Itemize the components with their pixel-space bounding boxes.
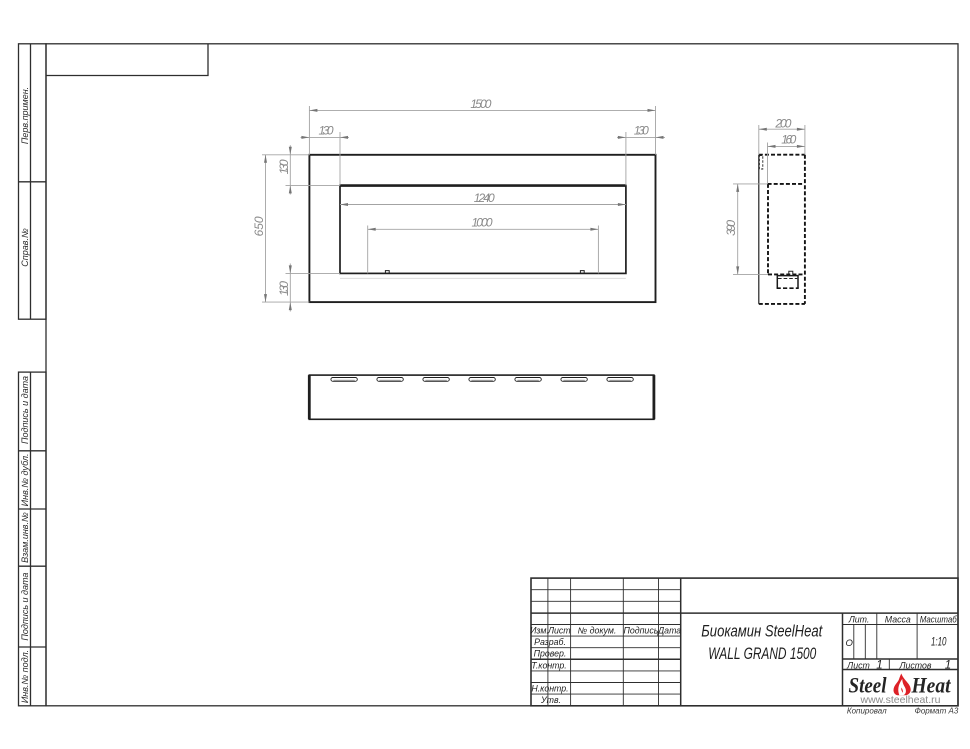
- svg-text:130: 130: [277, 159, 291, 174]
- svg-text:Взам.инв.№: Взам.инв.№: [20, 512, 30, 563]
- svg-text:1500: 1500: [470, 97, 491, 111]
- svg-text:200: 200: [774, 116, 791, 130]
- svg-text:Подпись и дата: Подпись и дата: [20, 376, 30, 444]
- svg-text:Биокамин SteelHeat: Биокамин SteelHeat: [701, 622, 823, 640]
- svg-text:Подпись и дата: Подпись и дата: [20, 573, 30, 641]
- svg-text:390: 390: [724, 220, 738, 236]
- svg-text:Лист: Лист: [547, 626, 571, 636]
- svg-text:Копировал: Копировал: [847, 707, 887, 716]
- svg-text:WALL GRAND 1500: WALL GRAND 1500: [708, 645, 817, 663]
- svg-text:Масса: Масса: [885, 614, 911, 624]
- svg-text:1:10: 1:10: [931, 635, 947, 649]
- svg-text:Подпись: Подпись: [623, 626, 658, 636]
- svg-text:160: 160: [781, 133, 796, 147]
- svg-text:1: 1: [945, 660, 951, 672]
- svg-text:Изм.: Изм.: [530, 626, 549, 636]
- svg-text:Дата: Дата: [657, 626, 681, 636]
- svg-text:1000: 1000: [472, 216, 493, 230]
- svg-text:1: 1: [876, 660, 882, 672]
- svg-text:Инв.№ дубл.: Инв.№ дубл.: [20, 453, 30, 506]
- svg-text:1240: 1240: [474, 191, 495, 205]
- svg-text:Формат А3: Формат А3: [915, 707, 959, 716]
- svg-text:Лист: Лист: [846, 660, 870, 670]
- svg-text:Т.контр.: Т.контр.: [531, 660, 567, 670]
- svg-text:Н.контр.: Н.контр.: [531, 684, 568, 694]
- svg-text:Утв.: Утв.: [540, 695, 561, 705]
- svg-text:Масштаб: Масштаб: [920, 614, 958, 624]
- svg-text:Справ.№: Справ.№: [20, 228, 30, 267]
- svg-text:www.steelheat.ru: www.steelheat.ru: [860, 694, 941, 706]
- svg-text:130: 130: [634, 123, 649, 137]
- svg-text:Разраб.: Разраб.: [534, 637, 566, 647]
- svg-text:650: 650: [252, 216, 266, 236]
- svg-text:Перв.примен.: Перв.примен.: [20, 87, 30, 144]
- svg-text:Листов: Листов: [898, 660, 931, 670]
- svg-text:Инв.№ подл.: Инв.№ подл.: [20, 650, 30, 703]
- svg-text:Лит.: Лит.: [848, 614, 870, 624]
- svg-text:130: 130: [277, 281, 291, 296]
- svg-text:№ докум.: № докум.: [578, 626, 617, 636]
- svg-text:130: 130: [319, 123, 334, 137]
- svg-text:Провер.: Провер.: [534, 649, 567, 659]
- svg-text:О: О: [846, 638, 854, 649]
